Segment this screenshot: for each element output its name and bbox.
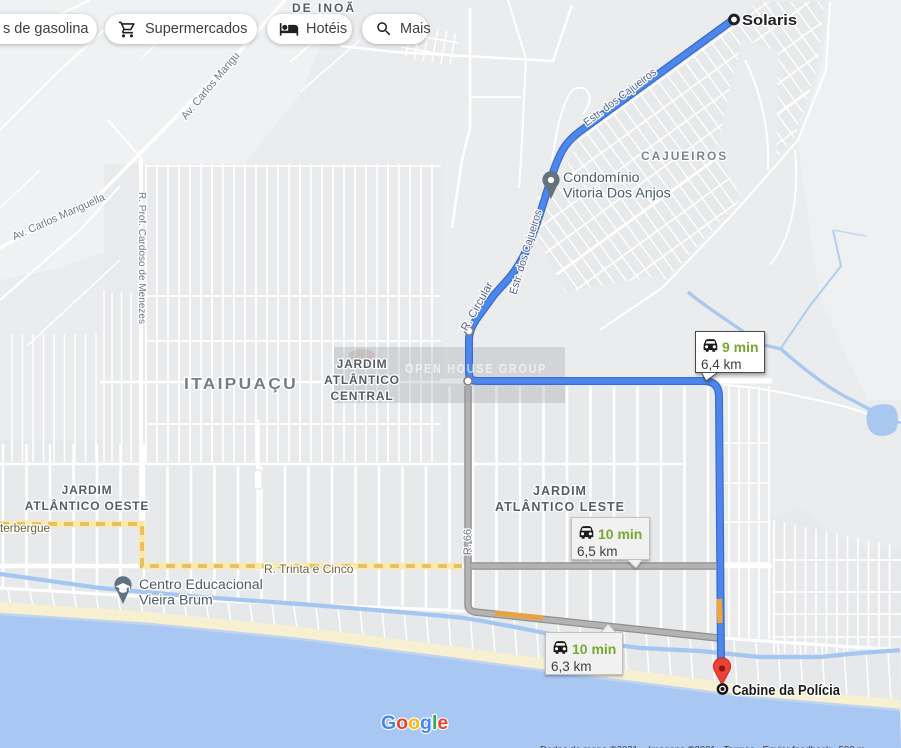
svg-text:6,3 km: 6,3 km xyxy=(551,659,592,674)
svg-text:ATLÂNTICO LESTE: ATLÂNTICO LESTE xyxy=(495,499,625,514)
svg-text:Google: Google xyxy=(381,712,448,734)
svg-text:CENTRAL: CENTRAL xyxy=(331,389,394,403)
svg-text:OPEN HOUSE GROUP: OPEN HOUSE GROUP xyxy=(405,361,547,376)
svg-text:R. 66: R. 66 xyxy=(462,529,474,555)
svg-text:Vitoria Dos Anjos: Vitoria Dos Anjos xyxy=(563,186,671,202)
svg-text:9 min: 9 min xyxy=(722,339,759,355)
svg-text:10 min: 10 min xyxy=(572,641,616,657)
svg-text:DE INOÃ: DE INOÃ xyxy=(292,0,356,15)
svg-text:Dados do mapa ©2021 Imagens: Dados do mapa ©2021 Imagens ©2021 Termos… xyxy=(540,745,865,748)
svg-text:R. Prof. Cardoso de Menezes: R. Prof. Cardoso de Menezes xyxy=(136,192,148,324)
svg-text:terbergue: terbergue xyxy=(0,523,50,535)
svg-text:JARDIM: JARDIM xyxy=(62,483,113,497)
svg-text:CAJUEIROS: CAJUEIROS xyxy=(641,149,728,163)
svg-text:Condomínio: Condomínio xyxy=(563,170,640,186)
svg-text:JARDIM: JARDIM xyxy=(337,357,388,371)
svg-text:Cabine da Polícia: Cabine da Polícia xyxy=(732,683,841,699)
svg-text:Solaris: Solaris xyxy=(742,12,797,29)
svg-text:10 min: 10 min xyxy=(598,526,642,542)
svg-text:ATLÂNTICO: ATLÂNTICO xyxy=(324,372,400,387)
svg-text:ATLÂNTICO OESTE: ATLÂNTICO OESTE xyxy=(25,498,149,513)
svg-text:Centro Educacional: Centro Educacional xyxy=(139,577,263,593)
svg-text:6,4 km: 6,4 km xyxy=(701,357,742,372)
svg-text:6,5 km: 6,5 km xyxy=(577,544,618,559)
svg-text:ITAIPUAÇU: ITAIPUAÇU xyxy=(184,376,298,393)
svg-text:JARDIM: JARDIM xyxy=(533,484,587,498)
svg-text:R. Trinta e Cinco: R. Trinta e Cinco xyxy=(264,562,354,576)
svg-text:Vieira Brum: Vieira Brum xyxy=(139,593,213,609)
